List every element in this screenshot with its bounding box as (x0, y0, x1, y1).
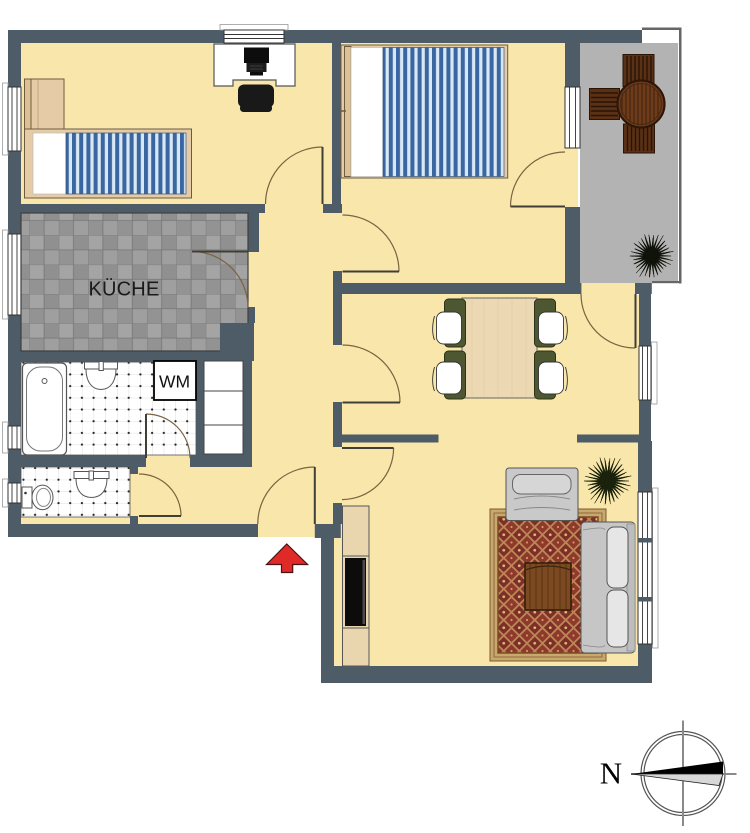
svg-text:N: N (600, 756, 622, 791)
svg-text:KÜCHE: KÜCHE (88, 279, 159, 301)
svg-text:WM: WM (159, 372, 190, 392)
